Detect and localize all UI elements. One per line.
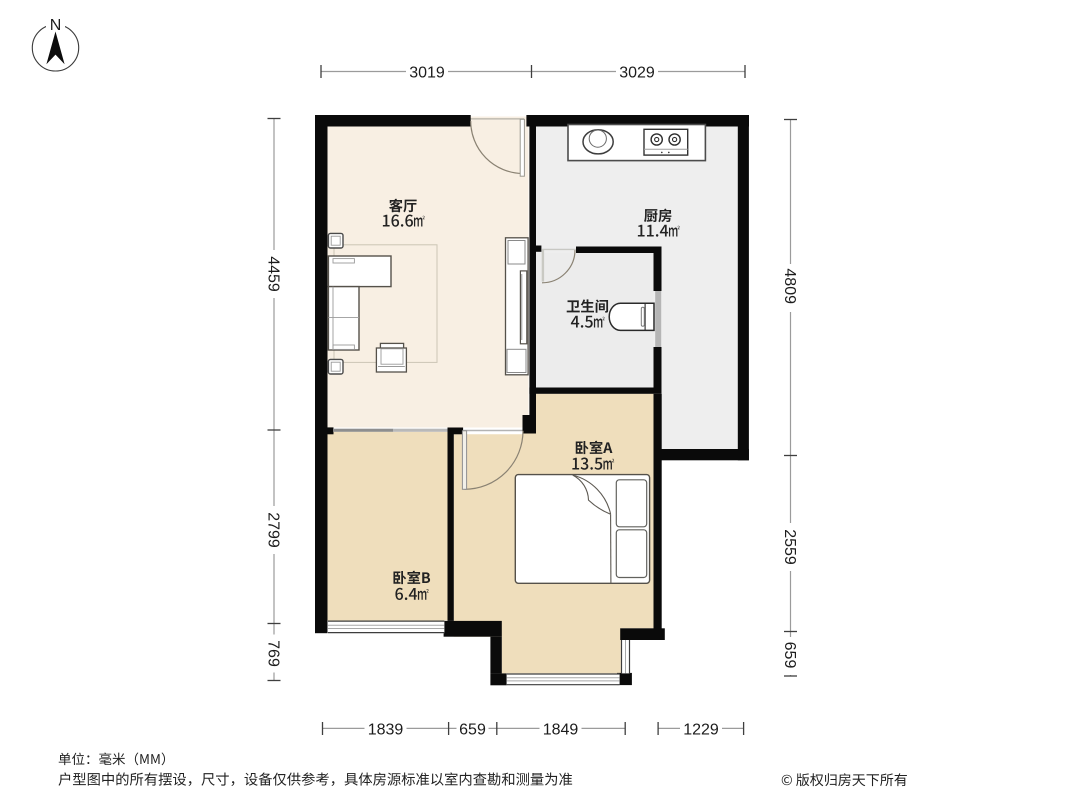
svg-text:3029: 3029 xyxy=(619,65,655,82)
svg-text:769: 769 xyxy=(265,640,282,667)
svg-text:1229: 1229 xyxy=(683,721,719,738)
svg-text:2559: 2559 xyxy=(781,529,798,565)
svg-text:2799: 2799 xyxy=(265,512,282,548)
svg-text:1849: 1849 xyxy=(543,721,579,738)
svg-text:659: 659 xyxy=(781,642,798,669)
svg-text:4459: 4459 xyxy=(265,256,282,292)
svg-text:3019: 3019 xyxy=(409,65,445,82)
svg-text:1839: 1839 xyxy=(368,721,404,738)
svg-text:N: N xyxy=(50,17,62,34)
svg-text:659: 659 xyxy=(459,721,486,738)
svg-text:4809: 4809 xyxy=(781,268,798,304)
